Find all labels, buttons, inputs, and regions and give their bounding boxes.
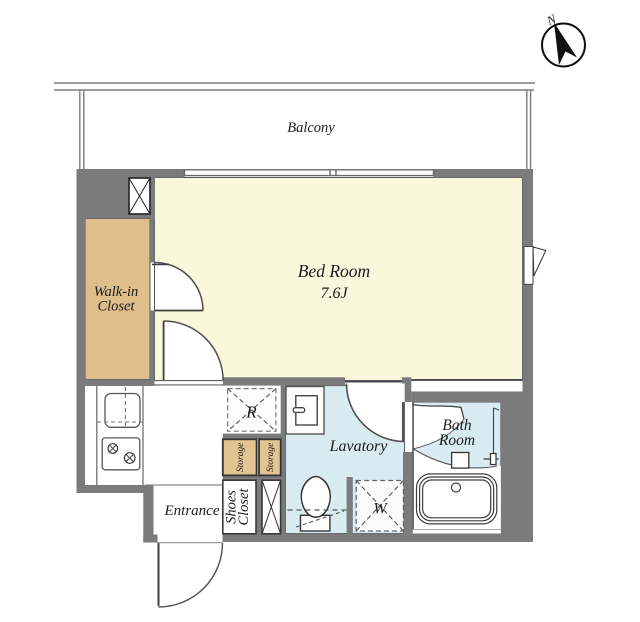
svg-text:Lavatory: Lavatory [329, 438, 389, 455]
svg-text:ShoesCloset: ShoesCloset [224, 488, 253, 526]
svg-text:Storage: Storage [266, 443, 276, 473]
svg-text:Room: Room [438, 432, 475, 449]
svg-text:R: R [245, 403, 257, 422]
svg-text:Storage: Storage [236, 443, 246, 473]
svg-text:Closet: Closet [97, 299, 135, 315]
svg-text:Bed Room: Bed Room [298, 261, 370, 281]
svg-text:Balcony: Balcony [287, 120, 335, 136]
svg-text:Entrance: Entrance [164, 503, 220, 519]
svg-text:7.6J: 7.6J [320, 285, 348, 302]
svg-text:W: W [373, 501, 388, 518]
